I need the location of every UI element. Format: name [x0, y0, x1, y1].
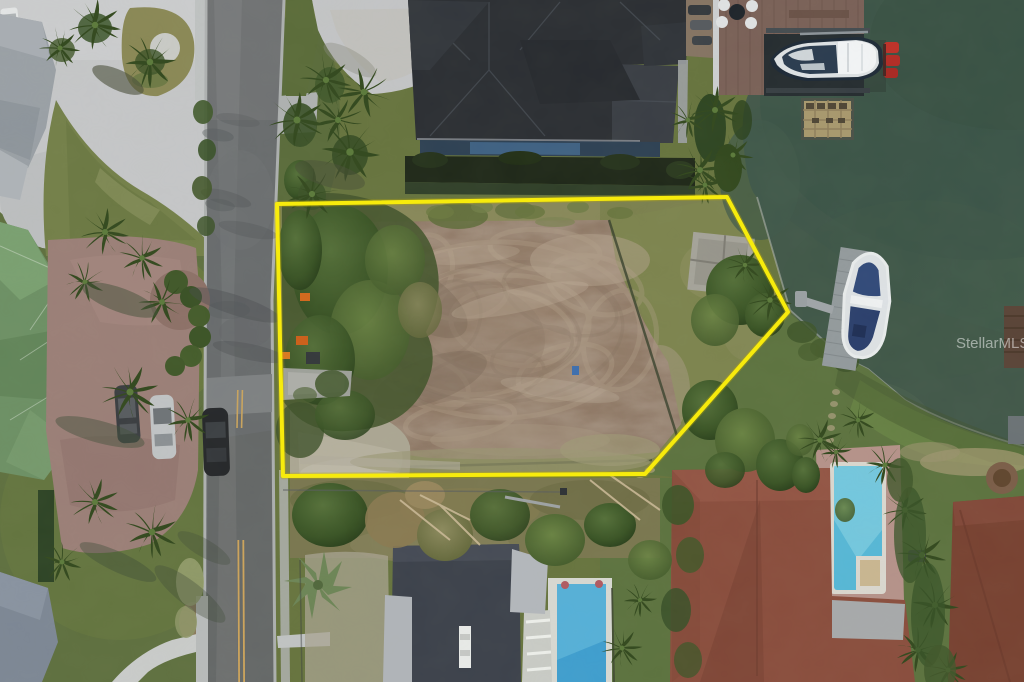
svg-text:StellarMLS: StellarMLS: [956, 335, 1024, 352]
